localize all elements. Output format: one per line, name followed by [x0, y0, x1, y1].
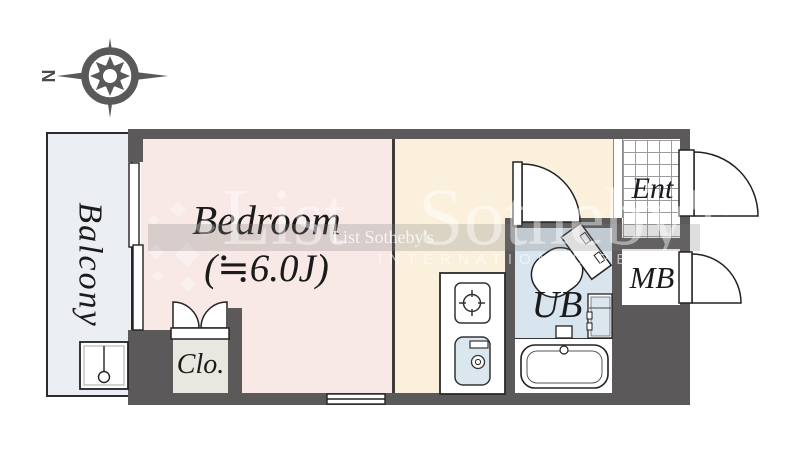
unit-bath-label: UB	[517, 282, 597, 327]
compass-hub-hole	[103, 69, 117, 83]
balcony-label: Balcony	[71, 202, 109, 327]
closet-label: Clo.	[171, 339, 230, 391]
wall-bedroom-kitchen	[392, 139, 395, 393]
entrance-door	[679, 150, 758, 216]
wall-closet-right	[228, 308, 242, 393]
wall-bottom	[128, 393, 690, 405]
entrance-step	[613, 139, 623, 218]
wall-left-lower	[128, 330, 173, 405]
wall-ub-left	[505, 228, 515, 393]
balcony-label-wrap: Balcony	[46, 132, 133, 397]
compass-icon: N	[38, 28, 188, 128]
wall-top	[128, 129, 690, 139]
wall-ent-mb	[613, 238, 690, 249]
north-label: N	[39, 70, 59, 83]
meter-box-door	[679, 252, 741, 303]
floor-plan-page: N	[0, 0, 800, 449]
meter-box-label: MB	[623, 249, 681, 306]
bath-tub-area	[515, 338, 612, 393]
bedroom-label: Bedroom	[192, 198, 341, 243]
entrance-label: Ent	[623, 140, 682, 238]
wall-lower-right-block	[612, 305, 690, 405]
wall-ub-top	[505, 218, 622, 228]
bedroom-label-wrap: Bedroom (≒6.0J)	[141, 198, 392, 291]
wall-right-lower	[680, 302, 690, 405]
bedroom-size-label: (≒6.0J)	[204, 248, 329, 291]
